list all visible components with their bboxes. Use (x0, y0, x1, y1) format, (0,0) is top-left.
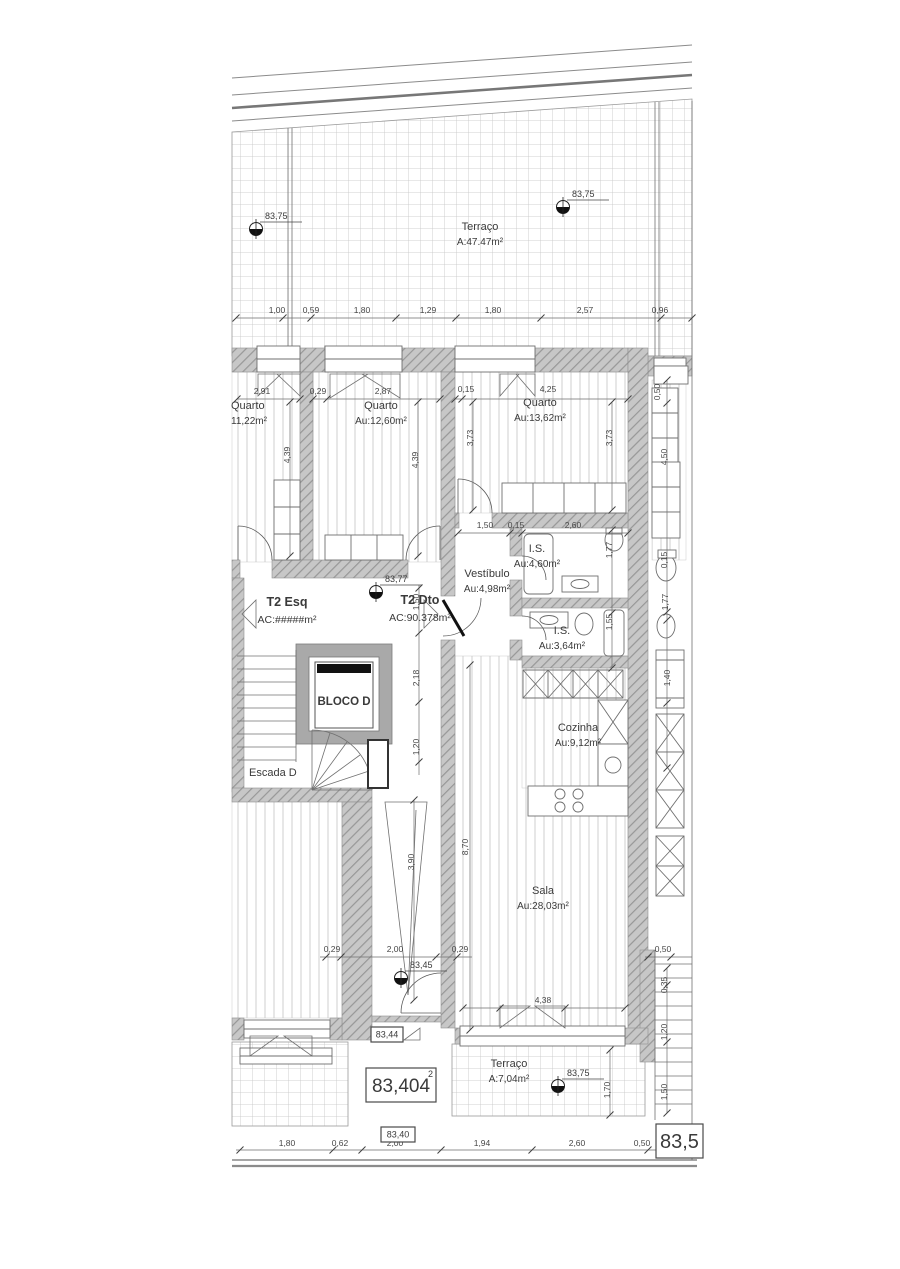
elevation-value: 83,77 (385, 574, 408, 584)
room-name: Vestíbulo (464, 568, 509, 580)
elevation-value: 83,75 (567, 1068, 590, 1078)
dimension-label: 3,73 (604, 429, 614, 446)
elevation-value: 83,45 (410, 960, 433, 970)
room-area: 11,22m² (231, 416, 268, 427)
room-area: Au:4,98m² (464, 584, 511, 595)
room-name: I.S. (529, 543, 546, 555)
dimension-label: 1,80 (354, 305, 371, 315)
elevator-shaft (296, 644, 392, 744)
elevation-stamp: 83,40 (381, 1127, 415, 1142)
elevation-marker: 83,45 (395, 960, 448, 988)
dimension-label: 2,18 (411, 669, 421, 686)
room-name: Cozinha (558, 722, 599, 734)
floor-plan-svg: 1,000,591,801,291,802,570,962,910,292,87… (0, 0, 900, 1269)
room-name: Quarto (231, 400, 265, 412)
dimension-label: 2,60 (569, 1138, 586, 1148)
dimension-label: 1,55 (604, 613, 614, 630)
dimension-label: 4,38 (535, 995, 552, 1005)
dimension-label: 2,87 (375, 386, 392, 396)
room-area: Au:3,64m² (539, 641, 586, 652)
dimension-label: 2,60 (565, 520, 582, 530)
room-area: Au:12,60m² (355, 416, 407, 427)
dimension-label: 0,96 (652, 305, 669, 315)
dimension-label: 0,50 (655, 944, 672, 954)
room-name: Terraço (491, 1058, 528, 1070)
dimension-label: 1,77 (604, 541, 614, 558)
dimension-label: 0,29 (324, 944, 341, 954)
apartment-label: T2 Dto (401, 593, 440, 607)
dimension-label: 1,80 (279, 1138, 296, 1148)
room-area: Au:4,60m² (514, 559, 561, 570)
dimension-label: 1,50 (659, 1083, 669, 1100)
dimension-label: 1,70 (602, 1081, 612, 1098)
dimension-label: 1,00 (269, 305, 286, 315)
dimension-label: 0,15 (508, 520, 525, 530)
stairs-label: Escada D (249, 767, 297, 779)
apartment-label: T2 Esq (267, 595, 308, 609)
room-name: Sala (532, 885, 555, 897)
dimension-label: 4,39 (410, 451, 420, 468)
dimension-label: 0,15 (458, 384, 475, 394)
room-name: I.S. (554, 625, 571, 637)
dimension-label: 2,00 (387, 944, 404, 954)
dimension-label: 1,20 (411, 738, 421, 755)
dimension-label: 8,70 (460, 838, 470, 855)
stamp-sup: 2 (428, 1069, 433, 1079)
dimension-label: 1,94 (474, 1138, 491, 1148)
dimension-label: 0,50 (634, 1138, 651, 1148)
dimension-label: 3,90 (406, 853, 416, 870)
elevator-label: BLOCO D (317, 696, 370, 708)
dimension-label: 1,29 (420, 305, 437, 315)
dimension-label: 0,62 (332, 1138, 349, 1148)
dimension-label: 4,39 (282, 446, 292, 463)
dimension-label: 0,50 (652, 383, 662, 400)
floor-plan-page: 1,000,591,801,291,802,570,962,910,292,87… (0, 0, 900, 1269)
elevation-stamp: 83,4042 (366, 1068, 436, 1102)
dimension-label: 1,40 (662, 669, 672, 686)
elevator-door-bar (317, 664, 371, 673)
dimension-label: 2,57 (577, 305, 594, 315)
apartment-area: AC:90.378m² (389, 612, 451, 624)
stamp-value: 83,40 (387, 1130, 410, 1140)
dimension-label: 0,59 (303, 305, 320, 315)
room-area: Au:28,03m² (517, 901, 569, 912)
dimension-label: 1,80 (485, 305, 502, 315)
dimension-label: 4,25 (540, 384, 557, 394)
room-name: Quarto (364, 400, 398, 412)
elevation-value: 83,75 (572, 189, 595, 199)
dimension-label: 1,50 (477, 520, 494, 530)
dimension-label: 4,50 (659, 448, 669, 465)
dimension-label: 1,77 (660, 593, 670, 610)
dimension-label: 0,29 (310, 386, 327, 396)
stamp-value: 83,5 (660, 1131, 699, 1153)
room-name: Terraço (462, 221, 499, 233)
room-area: Au:9,12m² (555, 738, 602, 749)
room-area: A:7,04m² (489, 1074, 530, 1085)
dimension-label: 0,35 (659, 976, 669, 993)
room-area: Au:13,62m² (514, 413, 566, 424)
elevation-stamp: 83,5 (656, 1124, 703, 1158)
apartment-area: AC:#####m² (258, 614, 317, 626)
stamp-value: 83,44 (376, 1030, 399, 1040)
room-name: Quarto (523, 397, 557, 409)
dimension-label: 1,20 (659, 1023, 669, 1040)
dimension-label: 0,15 (659, 551, 669, 568)
stamp-value: 83,404 (372, 1076, 431, 1097)
elevation-value: 83,75 (265, 211, 288, 221)
dimension-label: 2,91 (254, 386, 271, 396)
room-area: A:47.47m² (457, 237, 504, 248)
elevation-stamp: 83,44 (371, 1027, 403, 1042)
dimension-label: 0,29 (452, 944, 469, 954)
dimension-label: 3,73 (465, 429, 475, 446)
